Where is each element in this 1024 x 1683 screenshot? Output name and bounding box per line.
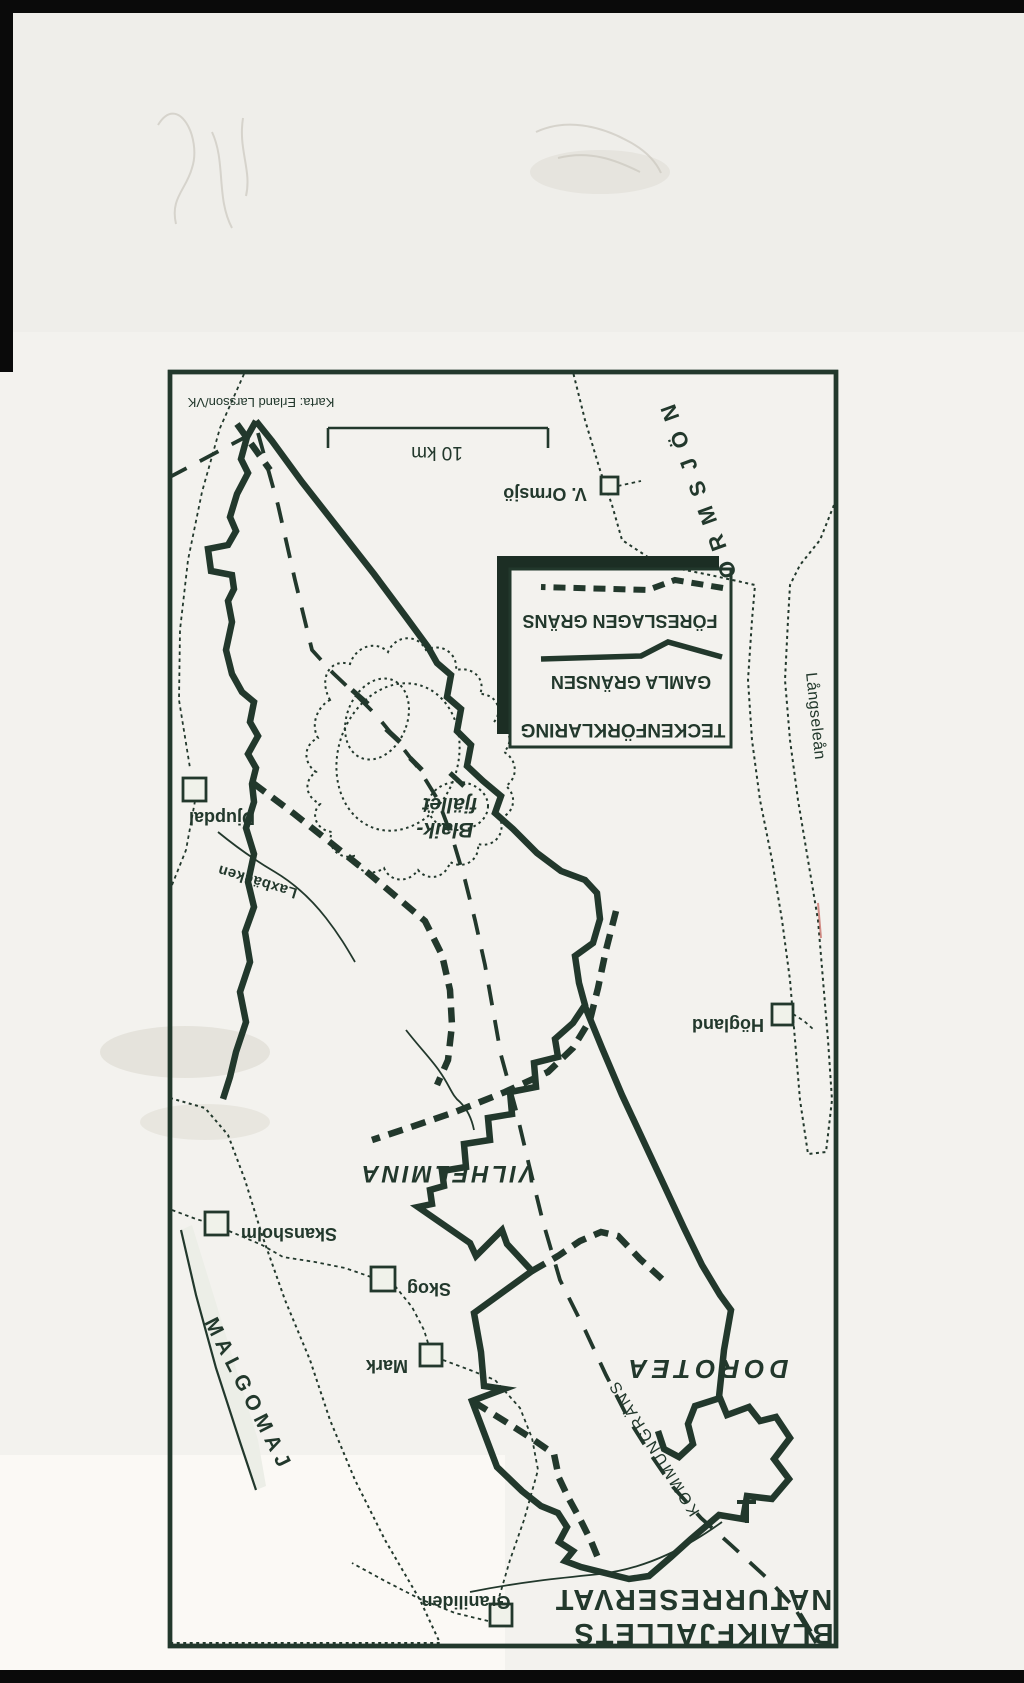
photo-edge-left xyxy=(0,0,13,372)
scale-label: 10 km xyxy=(411,442,463,463)
mountain-label-line2: Blaik- xyxy=(416,818,473,841)
map-photo-svg: 10 km Karta: Erland Larsson/VK FÖRESLAGE… xyxy=(0,0,1024,1683)
archive-photo-page: 10 km Karta: Erland Larsson/VK FÖRESLAGE… xyxy=(0,0,1024,1683)
photo-paper-top-band xyxy=(0,0,1024,332)
legend-title: TECKENFÖRKLARING xyxy=(521,719,726,740)
photo-paper-bottom-patch xyxy=(0,1455,505,1671)
legend-item-old: GAMLA GRÄNSEN xyxy=(551,672,711,692)
legend-item-proposed: FÖRESLAGEN GRÄNS xyxy=(522,611,717,631)
region-label-vilhelmina: VILHELMINA xyxy=(359,1160,536,1187)
reserve-title-line2: NATURRESERVAT xyxy=(554,1583,832,1615)
mountain-label-line1: fjället xyxy=(422,793,478,816)
photo-edge-bottom xyxy=(0,1670,1024,1683)
place-label-skansholm: Skansholm xyxy=(241,1224,337,1244)
hogland-marker xyxy=(772,1004,793,1025)
place-label-graniliden: Graniliden xyxy=(421,1592,510,1612)
region-label-dorotea: DOROTEA xyxy=(624,1354,789,1384)
skog-marker xyxy=(371,1267,395,1291)
place-label-djupdal: Djupdal xyxy=(189,808,255,828)
mark-marker xyxy=(420,1344,442,1366)
photo-edge-top xyxy=(0,0,1024,13)
credit-label: Karta: Erland Larsson/VK xyxy=(187,395,334,410)
djupdal-marker xyxy=(183,778,206,801)
skansholm-marker xyxy=(205,1212,228,1235)
vormsjo-marker xyxy=(601,477,618,494)
place-label-vormsjo: V. Ormsjö xyxy=(503,484,586,504)
place-label-mark: Mark xyxy=(365,1356,408,1376)
place-label-skog: Skog xyxy=(407,1279,451,1299)
place-label-hogland: Högland xyxy=(692,1015,764,1035)
